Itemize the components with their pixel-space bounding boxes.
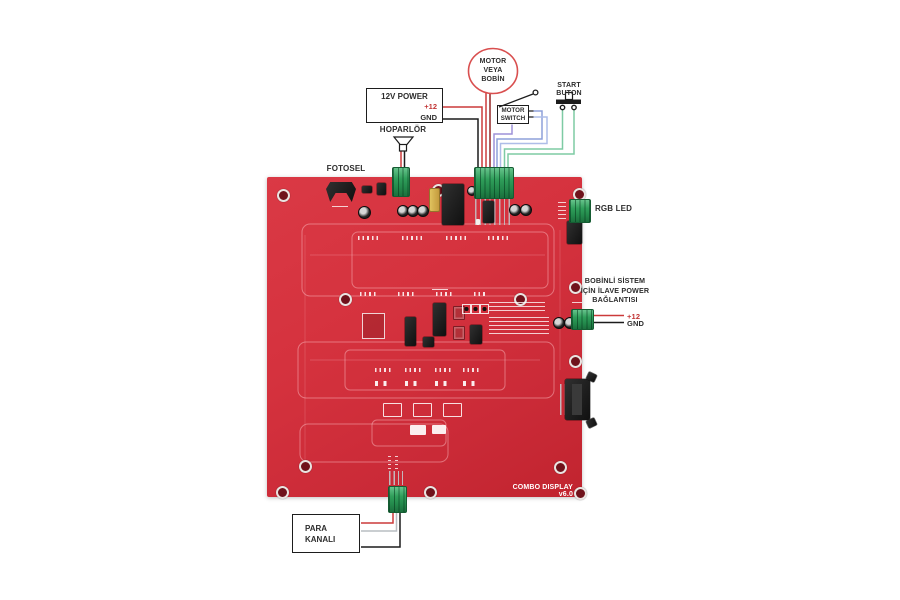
board-title: COMBO DISPLAY v6.0 xyxy=(500,484,573,498)
mounting-hole xyxy=(299,460,312,473)
wire-switch-common xyxy=(494,125,512,170)
motor-switch-box: MOTOR SWITCH xyxy=(497,105,529,124)
silkscreen-mark xyxy=(332,206,348,209)
pad-group xyxy=(402,236,424,240)
pad-group xyxy=(398,292,416,296)
dip-ic xyxy=(423,337,434,347)
mounting-hole xyxy=(277,189,290,202)
wire-plus12 xyxy=(443,107,482,169)
mounting-hole xyxy=(569,355,582,368)
pad-group xyxy=(436,292,454,296)
motor-label: MOTOR VEYA BOBİN xyxy=(469,57,517,84)
pad-group xyxy=(375,381,389,386)
main-terminal-block xyxy=(474,167,514,199)
switch-lever-roller xyxy=(533,90,538,95)
aux-gnd-label: GND xyxy=(627,319,644,328)
pad-group xyxy=(474,292,488,296)
photocell-label: FOTOSEL xyxy=(322,164,370,173)
idc-latch xyxy=(586,417,598,428)
silkscreen-text xyxy=(489,302,545,312)
pad-group xyxy=(488,236,510,240)
dip-ic xyxy=(433,303,446,336)
rgb-led-label: RGB LED xyxy=(595,204,640,213)
wire-switch-nc xyxy=(501,117,548,169)
led xyxy=(476,219,480,225)
silkscreen-text xyxy=(489,317,549,337)
dip-switch xyxy=(453,326,465,340)
pad-group xyxy=(446,236,468,240)
capacitor xyxy=(520,204,532,216)
pad-group xyxy=(463,381,477,386)
pad-group xyxy=(435,368,452,372)
capacitor xyxy=(358,206,371,219)
connector-footprint xyxy=(410,425,426,435)
power-supply-label: 12V POWER xyxy=(367,92,442,101)
rgb-led-bracket xyxy=(567,221,582,244)
mounting-hole xyxy=(574,487,587,500)
mounting-hole xyxy=(276,486,289,499)
wire-coin-gray xyxy=(361,510,397,531)
tact-button xyxy=(480,304,489,314)
speaker-icon xyxy=(394,137,413,151)
coin-terminal xyxy=(388,486,407,513)
dip-ic xyxy=(405,317,416,346)
coin-channel-box: PARA KANALI xyxy=(292,514,360,553)
silkscreen-mark xyxy=(395,456,398,469)
power-gnd-label: GND xyxy=(420,113,437,122)
rgb-led-terminal xyxy=(569,199,591,223)
tact-button xyxy=(471,304,480,314)
wire-coin-black xyxy=(361,510,400,547)
connector-footprint xyxy=(432,425,446,434)
ic-footprint xyxy=(362,313,385,339)
mounting-hole xyxy=(339,293,352,306)
aux-power-label: BOBİNLİ SİSTEM İÇİN İLAVE POWER BAĞLANTI… xyxy=(577,276,653,305)
solder-pins xyxy=(389,471,403,485)
pad-group xyxy=(405,381,419,386)
start-button-label: START BUTON xyxy=(549,82,589,98)
smd-component xyxy=(377,183,386,195)
silkscreen-mark xyxy=(388,456,391,469)
voltage-regulator xyxy=(483,201,494,223)
film-capacitor xyxy=(429,188,440,212)
capacitor xyxy=(417,205,429,217)
pad-group xyxy=(375,368,392,372)
connector-footprint xyxy=(443,403,462,417)
connector-footprint xyxy=(383,403,402,417)
dip-ic xyxy=(470,325,482,344)
power-plus-label: +12 xyxy=(424,102,437,111)
connector-footprint xyxy=(413,403,432,417)
tact-button xyxy=(462,304,471,314)
wiring-diagram: COMBO DISPLAY v6.0 xyxy=(0,0,900,600)
speaker-label: HOPARLÖR xyxy=(379,125,427,134)
mounting-hole xyxy=(424,486,437,499)
idc-slot xyxy=(572,384,582,415)
mounting-hole xyxy=(554,461,567,474)
smd-component xyxy=(362,186,372,193)
aux-power-terminal xyxy=(571,309,594,330)
pad-group xyxy=(405,368,422,372)
pad-group xyxy=(463,368,480,372)
speaker-terminal xyxy=(392,167,410,197)
silkscreen-mark xyxy=(558,202,566,220)
pad-group xyxy=(360,292,378,296)
wire-gnd xyxy=(443,119,478,169)
pad-group xyxy=(435,381,449,386)
power-supply-box: 12V POWER +12 GND xyxy=(366,88,443,123)
relay xyxy=(442,184,464,225)
switch-terminal-stubs xyxy=(529,111,534,117)
pad-group xyxy=(358,236,380,240)
